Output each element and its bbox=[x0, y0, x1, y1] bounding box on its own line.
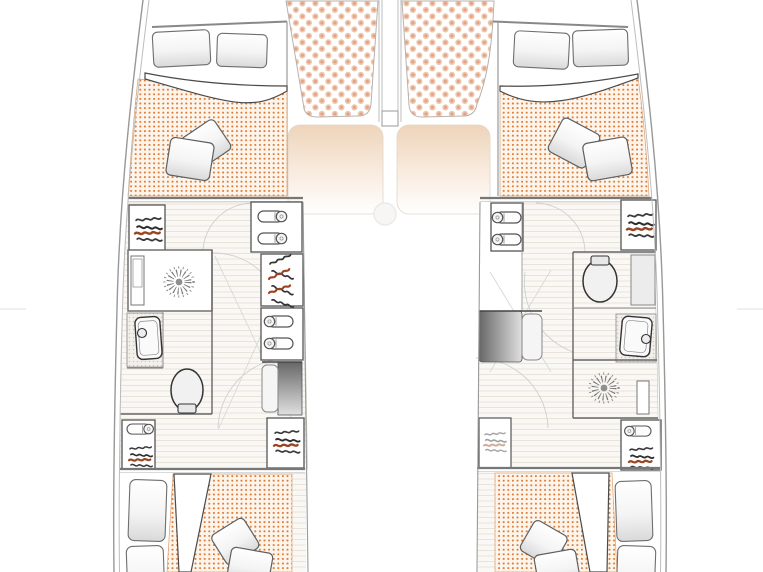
port-wardrobe-aft-inboard bbox=[267, 418, 304, 468]
locker-pull-icon bbox=[258, 233, 287, 244]
faucet bbox=[642, 335, 651, 344]
side-shelf bbox=[478, 472, 495, 572]
throw-pillow bbox=[582, 136, 633, 181]
toilet-tank bbox=[178, 404, 196, 413]
pillow bbox=[572, 29, 628, 67]
pillow bbox=[216, 33, 267, 68]
sun-cushion-port bbox=[288, 125, 383, 214]
port-washbasin bbox=[127, 313, 163, 367]
locker-pull-icon bbox=[492, 234, 521, 245]
steps-side-panel bbox=[522, 314, 542, 360]
locker-pull-icon bbox=[127, 424, 153, 434]
starboard-companionway-steps bbox=[479, 311, 542, 362]
pillow bbox=[513, 31, 570, 70]
port-aft-cabin bbox=[119, 473, 306, 572]
bathroom-cabinet bbox=[631, 255, 655, 305]
side-shelf bbox=[292, 473, 306, 572]
port-hull bbox=[119, 22, 308, 572]
locker-pull-icon bbox=[258, 211, 287, 222]
toilet-tank bbox=[591, 256, 609, 265]
mast-step bbox=[382, 111, 398, 126]
port-companionway-steps bbox=[262, 362, 302, 415]
starboard-aft-cabin bbox=[478, 472, 660, 572]
locker-pull-icon bbox=[264, 338, 293, 349]
faucet bbox=[138, 329, 147, 338]
shower-bench bbox=[637, 381, 649, 414]
pillow bbox=[128, 479, 167, 541]
steps-side-panel bbox=[262, 365, 278, 412]
toilet bbox=[583, 260, 617, 302]
mast-foot bbox=[374, 203, 396, 225]
port-hanging-locker bbox=[261, 254, 303, 306]
pillow bbox=[615, 480, 653, 541]
starboard-wardrobe-aft-inboard bbox=[479, 418, 511, 468]
throw-pillow bbox=[165, 137, 214, 181]
sun-cushion-starboard bbox=[397, 125, 490, 214]
port-shower-room bbox=[128, 250, 212, 311]
pillow bbox=[152, 30, 211, 68]
locker-pull-icon bbox=[625, 426, 651, 436]
steps bbox=[479, 311, 522, 362]
locker-pull-icon bbox=[264, 316, 293, 327]
yacht-floorplan bbox=[0, 0, 763, 572]
locker-pull-icon bbox=[492, 212, 521, 223]
pillow bbox=[126, 545, 165, 572]
starboard-washbasin bbox=[616, 314, 656, 362]
pillow bbox=[616, 545, 656, 572]
starboard-hull bbox=[476, 22, 661, 572]
steps bbox=[278, 362, 302, 415]
